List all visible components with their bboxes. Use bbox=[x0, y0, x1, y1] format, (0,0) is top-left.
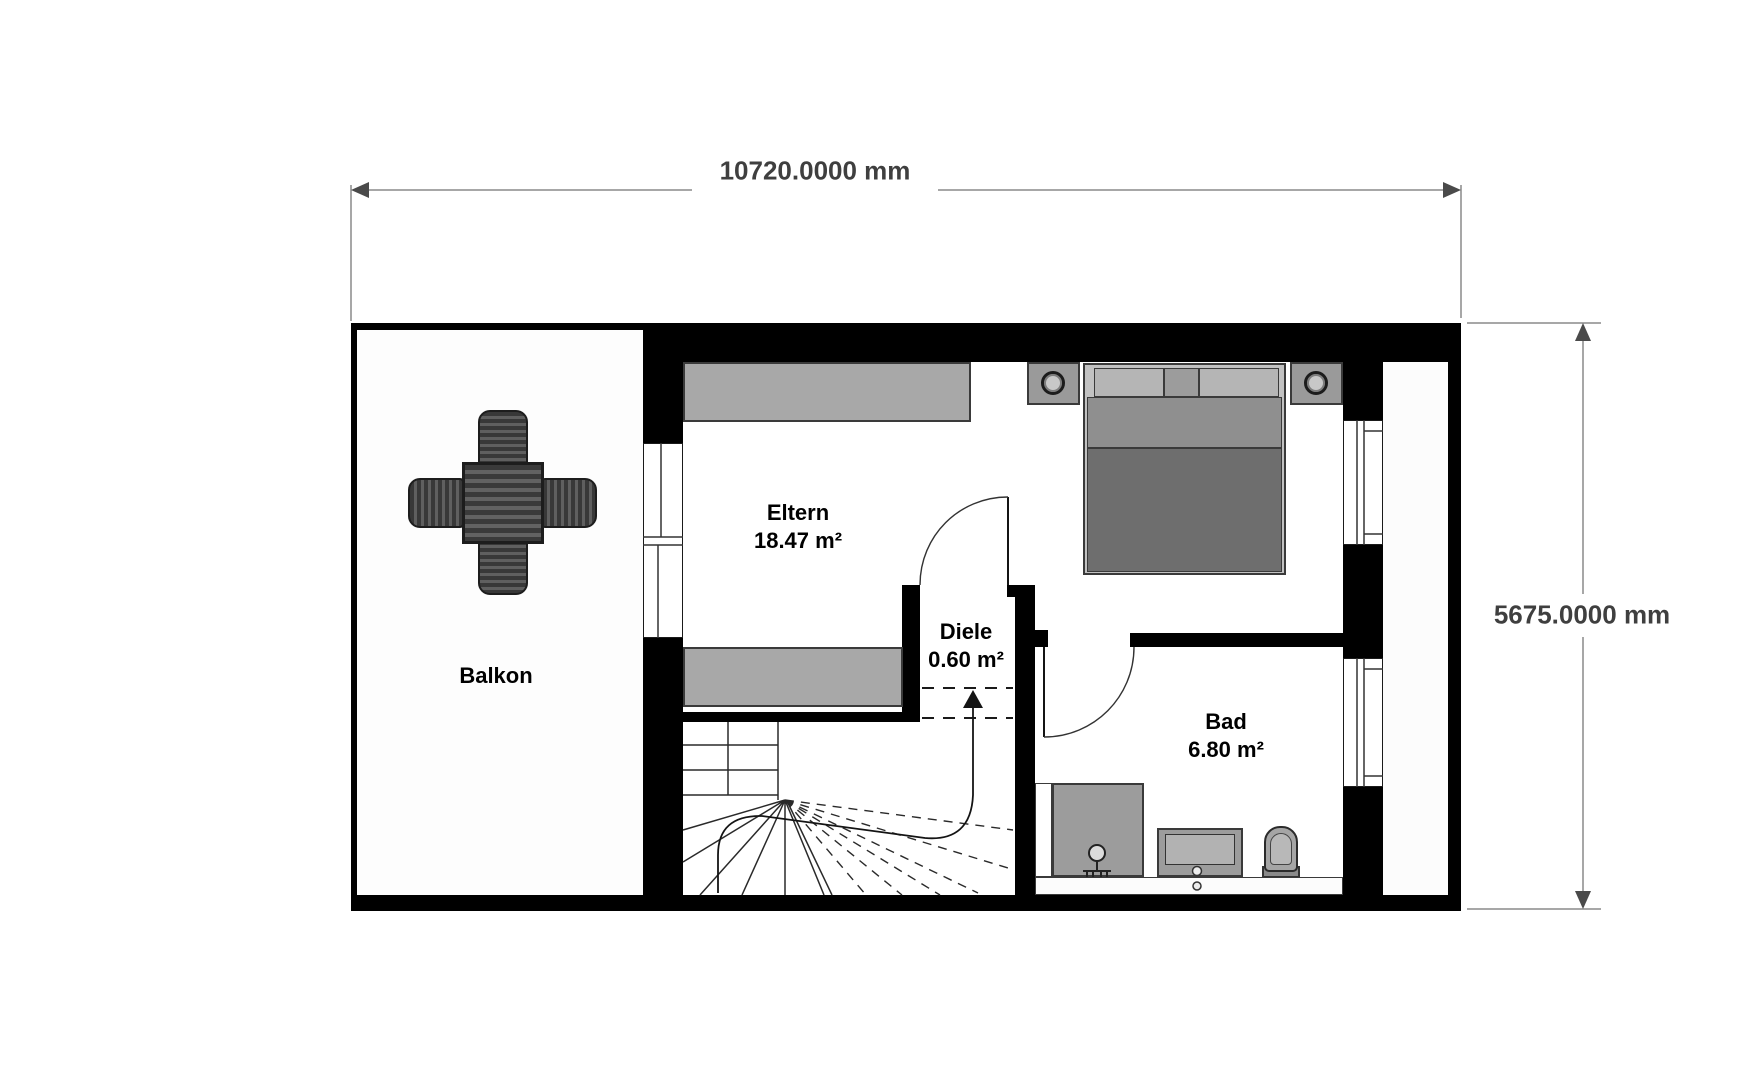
walk-line-arrow-icon bbox=[963, 690, 983, 708]
room-name-diele: Diele bbox=[928, 618, 1004, 646]
window-frame-lines bbox=[643, 420, 1383, 787]
dimension-width-label: 10720.0000 mm bbox=[712, 156, 919, 187]
dimension-height-value: 5675.0000 mm bbox=[1494, 600, 1670, 630]
room-label-eltern: Eltern 18.47 m² bbox=[754, 499, 842, 555]
dim-arrow-down-icon bbox=[1575, 891, 1591, 909]
stairs-winder-dashed bbox=[785, 800, 1013, 895]
room-name-balkon: Balkon bbox=[459, 662, 532, 690]
dim-arrow-left-icon bbox=[351, 182, 369, 198]
floor-plan: 10720.0000 mm 5675.0000 mm Balkon Eltern… bbox=[0, 0, 1741, 1080]
room-label-diele: Diele 0.60 m² bbox=[928, 618, 1004, 674]
stairs-steps bbox=[683, 722, 778, 800]
dim-arrow-right-icon bbox=[1443, 182, 1461, 198]
dim-arrow-up-icon bbox=[1575, 323, 1591, 341]
room-name-bad: Bad bbox=[1188, 708, 1264, 736]
room-label-balkon: Balkon bbox=[459, 662, 532, 690]
stairs-walk-line bbox=[718, 690, 983, 893]
shower-head-icon bbox=[1083, 845, 1111, 877]
dimension-width-value: 10720.0000 mm bbox=[720, 156, 911, 186]
faucet-dots-icon bbox=[1193, 867, 1202, 891]
stairs-winder-solid bbox=[683, 800, 832, 895]
room-area-diele: 0.60 m² bbox=[928, 646, 1004, 674]
dimension-width-lines bbox=[351, 185, 1461, 321]
dimension-height-label: 5675.0000 mm bbox=[1486, 600, 1678, 631]
room-name-eltern: Eltern bbox=[754, 499, 842, 527]
door-eltern bbox=[920, 497, 1008, 585]
door-bad bbox=[1044, 647, 1134, 737]
room-area-bad: 6.80 m² bbox=[1188, 736, 1264, 764]
room-label-bad: Bad 6.80 m² bbox=[1188, 708, 1264, 764]
room-area-eltern: 18.47 m² bbox=[754, 527, 842, 555]
